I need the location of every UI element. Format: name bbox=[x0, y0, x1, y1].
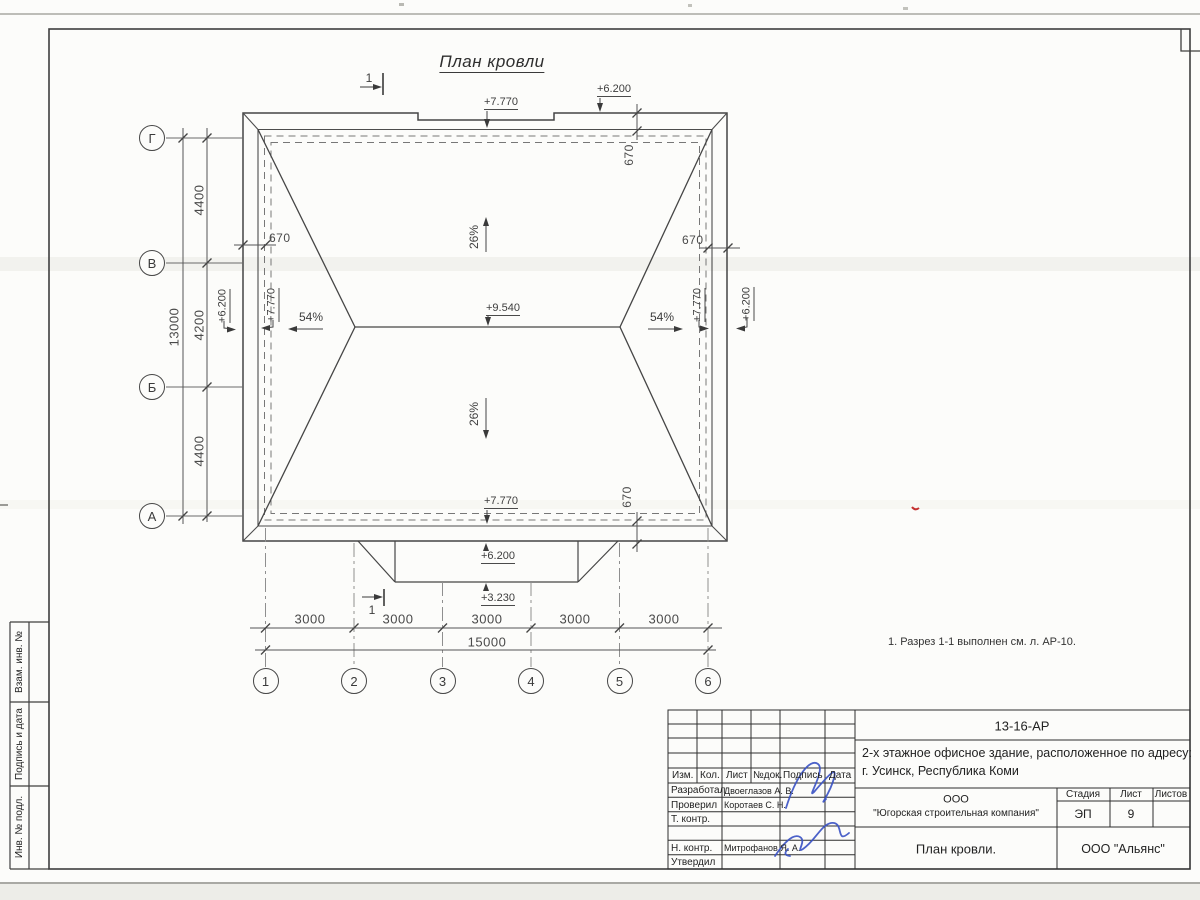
elevation-label: +7.770 bbox=[484, 97, 518, 110]
plan-title: План кровли bbox=[439, 53, 544, 73]
axis-number: 3 bbox=[439, 674, 446, 689]
titleblock-sheet-label: Лист bbox=[1120, 790, 1142, 800]
axis-bubble-col: 3 bbox=[430, 668, 456, 694]
dim-label: 4400 bbox=[193, 436, 206, 467]
slope-label: 26% bbox=[468, 225, 480, 249]
parapet-width-label: 670 bbox=[269, 232, 291, 244]
dim-total-label: 15000 bbox=[468, 636, 507, 649]
titleblock-drawing-name: План кровли. bbox=[916, 843, 996, 856]
titleblock-name: Двоеглазов А. В. bbox=[724, 787, 794, 796]
axis-bubble-row: Г bbox=[139, 125, 165, 151]
parapet-width-label: 670 bbox=[682, 234, 704, 246]
titleblock-header-cell: Кол. bbox=[700, 771, 720, 781]
dim-total-label: 13000 bbox=[168, 308, 181, 347]
titleblock-sheet-value: 9 bbox=[1128, 808, 1135, 820]
axis-letter: В bbox=[148, 256, 157, 271]
axis-number: 4 bbox=[527, 674, 534, 689]
axis-bubble-col: 1 bbox=[253, 668, 279, 694]
titleblock-header-cell: Подпись bbox=[783, 771, 823, 781]
titleblock-role: Н. контр. bbox=[671, 844, 712, 854]
axis-bubble-row: А bbox=[139, 503, 165, 529]
elevation-label: +3.230 bbox=[481, 593, 515, 606]
axis-bubble-col: 6 bbox=[695, 668, 721, 694]
axis-bubble-col: 5 bbox=[607, 668, 633, 694]
titleblock-object-line2: г. Усинск, Республика Коми bbox=[862, 765, 1019, 778]
axis-bubble-row: Б bbox=[139, 374, 165, 400]
titleblock-company-line1: ООО bbox=[943, 795, 969, 806]
titleblock-name: Коротаев С. Н. bbox=[724, 801, 786, 810]
titleblock-sheets-label: Листов bbox=[1155, 790, 1188, 800]
elevation-label: +6.200 bbox=[597, 84, 631, 97]
stamp-side-label: Взам. инв. № bbox=[15, 631, 25, 693]
ridge-elevation-label: +9.540 bbox=[486, 303, 520, 316]
dim-label: 3000 bbox=[649, 613, 680, 626]
titleblock-role: Утвердил bbox=[671, 858, 715, 868]
titleblock-doc-number: 13-16-АР bbox=[995, 720, 1050, 733]
parapet-width-label: 670 bbox=[621, 486, 633, 508]
slope-label: 26% bbox=[468, 402, 480, 426]
slope-label: 54% bbox=[299, 311, 323, 323]
parapet-width-label: 670 bbox=[623, 144, 635, 166]
axis-letter: Б bbox=[148, 380, 157, 395]
dim-label: 3000 bbox=[560, 613, 591, 626]
axis-letter: А bbox=[148, 509, 157, 524]
elevation-label: +6.200 bbox=[481, 551, 515, 564]
elevation-label: +7.770 bbox=[267, 288, 280, 322]
elevation-label: +6.200 bbox=[742, 287, 755, 321]
titleblock-name: Митрофанов Я. А. bbox=[724, 844, 800, 853]
section-mark-label: 1 bbox=[366, 72, 373, 84]
axis-bubble-row: В bbox=[139, 250, 165, 276]
titleblock-company-line2: "Югорская строительная компания" bbox=[873, 809, 1039, 819]
axis-bubble-col: 4 bbox=[518, 668, 544, 694]
titleblock-header-cell: Лист bbox=[726, 771, 748, 781]
elevation-label: +7.770 bbox=[484, 496, 518, 509]
stamp-side-label: Инв. № подл. bbox=[15, 796, 25, 858]
dim-label: 4200 bbox=[193, 310, 206, 341]
stamp-side-label: Подпись и дата bbox=[15, 708, 25, 780]
titleblock-stage-value: ЭП bbox=[1074, 808, 1091, 820]
axis-number: 2 bbox=[350, 674, 357, 689]
titleblock-header-cell: Изм. bbox=[672, 771, 693, 781]
axis-number: 1 bbox=[262, 674, 269, 689]
elevation-label: +7.770 bbox=[693, 288, 706, 322]
titleblock-stage-label: Стадия bbox=[1066, 790, 1100, 800]
titleblock-header-cell: №док. bbox=[753, 771, 782, 781]
titleblock-contractor: ООО "Альянс" bbox=[1081, 843, 1165, 856]
linework-svg bbox=[0, 0, 1200, 900]
dim-label: 4400 bbox=[193, 185, 206, 216]
dim-label: 3000 bbox=[295, 613, 326, 626]
dim-label: 3000 bbox=[383, 613, 414, 626]
drawing-sheet: План кровли 1 1 +7.770 +6.200 +7.770 +6.… bbox=[0, 0, 1200, 900]
elevation-label: +6.200 bbox=[218, 289, 231, 323]
titleblock-role: Разработал bbox=[671, 786, 725, 796]
titleblock-role: Т. контр. bbox=[671, 815, 710, 825]
axis-bubble-col: 2 bbox=[341, 668, 367, 694]
titleblock-object-line1: 2-х этажное офисное здание, расположенно… bbox=[862, 747, 1192, 760]
titleblock-header-cell: Дата bbox=[829, 771, 851, 781]
slope-label: 54% bbox=[650, 311, 674, 323]
dim-label: 3000 bbox=[472, 613, 503, 626]
sheet-note: 1. Разрез 1-1 выполнен см. л. АР-10. bbox=[888, 637, 1076, 648]
titleblock-role: Проверил bbox=[671, 801, 717, 811]
axis-letter: Г bbox=[148, 131, 155, 146]
axis-number: 5 bbox=[616, 674, 623, 689]
section-mark-label: 1 bbox=[369, 604, 376, 616]
axis-number: 6 bbox=[704, 674, 711, 689]
